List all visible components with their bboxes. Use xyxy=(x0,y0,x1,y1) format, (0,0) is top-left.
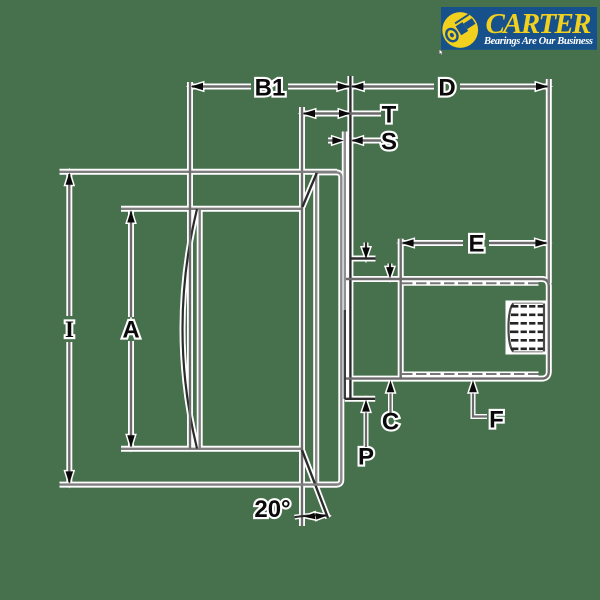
svg-text:F: F xyxy=(489,407,504,434)
svg-text:I: I xyxy=(65,317,74,342)
svg-text:E: E xyxy=(468,231,484,258)
svg-text:P: P xyxy=(358,444,374,471)
svg-text:T: T xyxy=(382,102,397,129)
svg-text:C: C xyxy=(382,408,399,435)
svg-text:B1: B1 xyxy=(255,75,286,102)
svg-text:D: D xyxy=(438,75,455,102)
svg-text:A: A xyxy=(122,317,139,344)
svg-text:S: S xyxy=(381,129,397,156)
svg-text:Bearings Are Our Business: Bearings Are Our Business xyxy=(483,36,593,47)
svg-text:20°: 20° xyxy=(254,496,290,523)
